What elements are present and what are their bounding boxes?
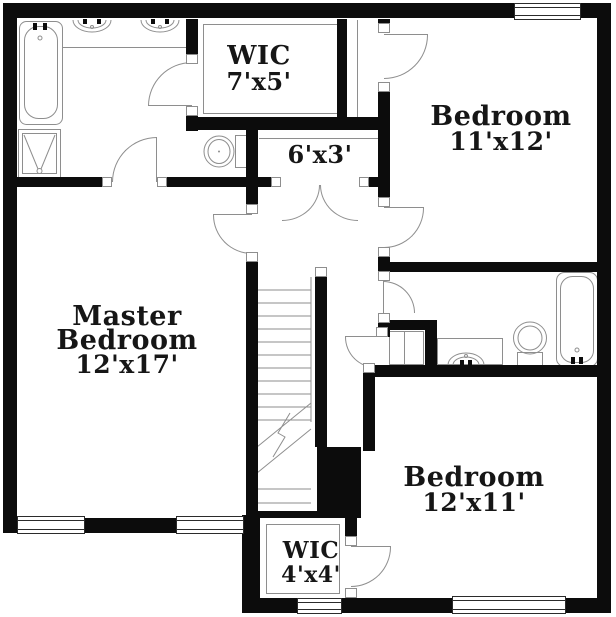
wall-toilet-nook-east (246, 123, 258, 214)
linen-closet-outline (389, 331, 424, 365)
door-jamb (378, 23, 390, 33)
wall-exterior-left (3, 3, 17, 533)
wall-wic4-west (242, 515, 260, 613)
wall-bedroom2-south (388, 262, 598, 272)
room-name: Bedroom (403, 465, 544, 490)
door-arc-double-left (282, 185, 320, 221)
closet2-shelf-line (357, 20, 358, 117)
room-label-bedroom-2: Bedroom 11'x12' (430, 104, 571, 154)
door-jamb (315, 267, 327, 277)
door-leaf-masterbath (156, 137, 157, 182)
room-label-hall-closet: 6'x3' (288, 143, 353, 167)
wall-hallbath-south (363, 365, 598, 377)
door-jamb (186, 106, 198, 116)
door-jamb (246, 252, 258, 262)
master-bathtub (19, 21, 63, 125)
door-jamb (186, 54, 198, 64)
door-arc-bedroom2 (384, 208, 424, 248)
door-arc-hallbath (383, 281, 415, 313)
room-dims: 6'x3' (288, 143, 353, 167)
door-leaf-bedroom2-closet (384, 34, 428, 35)
wall-hall-south-a (17, 177, 112, 187)
room-label-wic-lower: WIC 4'x4' (281, 539, 341, 587)
hall-bath-sink (447, 339, 485, 366)
door-arc-bedroom2-closet (384, 35, 428, 79)
room-dims: 11'x12' (430, 129, 571, 154)
door-jamb (345, 536, 357, 546)
linen-closet-divider (404, 331, 405, 365)
wall-linen-east (425, 320, 437, 377)
door-jamb (378, 247, 390, 257)
door-arc-double-right (320, 185, 358, 221)
wall-under-wic7 (186, 117, 385, 130)
hall-bath-toilet (510, 321, 550, 368)
room-dims: 7'x5' (227, 69, 292, 95)
master-toilet (202, 133, 248, 170)
room-name: WIC (281, 539, 341, 563)
window-wic4-bottom (297, 598, 342, 614)
door-jamb (363, 363, 375, 373)
door-arc-wic4 (351, 547, 391, 587)
door-jamb (271, 177, 281, 187)
wall-master-east (246, 252, 258, 518)
wall-exterior-right (597, 3, 611, 613)
shower-stall (18, 129, 61, 178)
door-jamb (378, 313, 390, 323)
room-name: WIC (227, 43, 292, 69)
door-jamb (345, 588, 357, 598)
wall-stair-east (315, 277, 327, 447)
window-bedroom2-top (514, 3, 581, 20)
door-jamb (378, 197, 390, 207)
room-dims: 12'x17' (56, 353, 197, 377)
wall-wic4-north (248, 511, 361, 518)
door-arc-master-bedroom (213, 215, 252, 254)
wall-hall-south-b (157, 177, 281, 187)
door-leaf-bedroom2 (384, 207, 424, 208)
wall-chase-mass (317, 447, 361, 515)
vanity-counter-line (62, 47, 194, 48)
window-bedroom3-bottom (452, 596, 566, 614)
vanity-sink-left (72, 19, 112, 45)
door-arc-masterbath (112, 137, 157, 182)
door-jamb (359, 177, 369, 187)
hall-closet-shelf-line (259, 138, 378, 139)
wall-closet2-divider (337, 19, 347, 117)
door-leaf-wic4 (351, 546, 391, 547)
door-jamb (378, 82, 390, 92)
door-leaf-master-bedroom (213, 214, 252, 215)
door-leaf-linen (345, 336, 376, 337)
wall-bedroom3-west (363, 363, 375, 451)
room-label-bedroom-3: Bedroom 12'x11' (403, 465, 544, 515)
door-arc-wic7 (148, 62, 192, 106)
door-leaf-hallbath (383, 281, 384, 313)
wall-east-line-b (378, 82, 390, 207)
vanity-sink-right (140, 19, 180, 45)
staircase (257, 277, 313, 517)
room-name: Bedroom (430, 104, 571, 129)
room-dims: 12'x11' (403, 490, 544, 515)
door-jamb (376, 327, 388, 337)
window-master-right (176, 516, 244, 534)
room-label-wic-upper: WIC 7'x5' (227, 43, 292, 95)
door-jamb (378, 271, 390, 281)
hall-bathtub (556, 272, 598, 367)
room-dims: 4'x4' (281, 563, 341, 587)
door-jamb (157, 177, 167, 187)
room-label-master-bedroom: Master Bedroom 12'x17' (56, 305, 197, 377)
door-jamb (246, 204, 258, 214)
door-jamb (102, 177, 112, 187)
floor-plan: WIC 7'x5' Bedroom 11'x12' 6'x3' Master B… (0, 0, 616, 617)
window-master-left (17, 516, 85, 534)
